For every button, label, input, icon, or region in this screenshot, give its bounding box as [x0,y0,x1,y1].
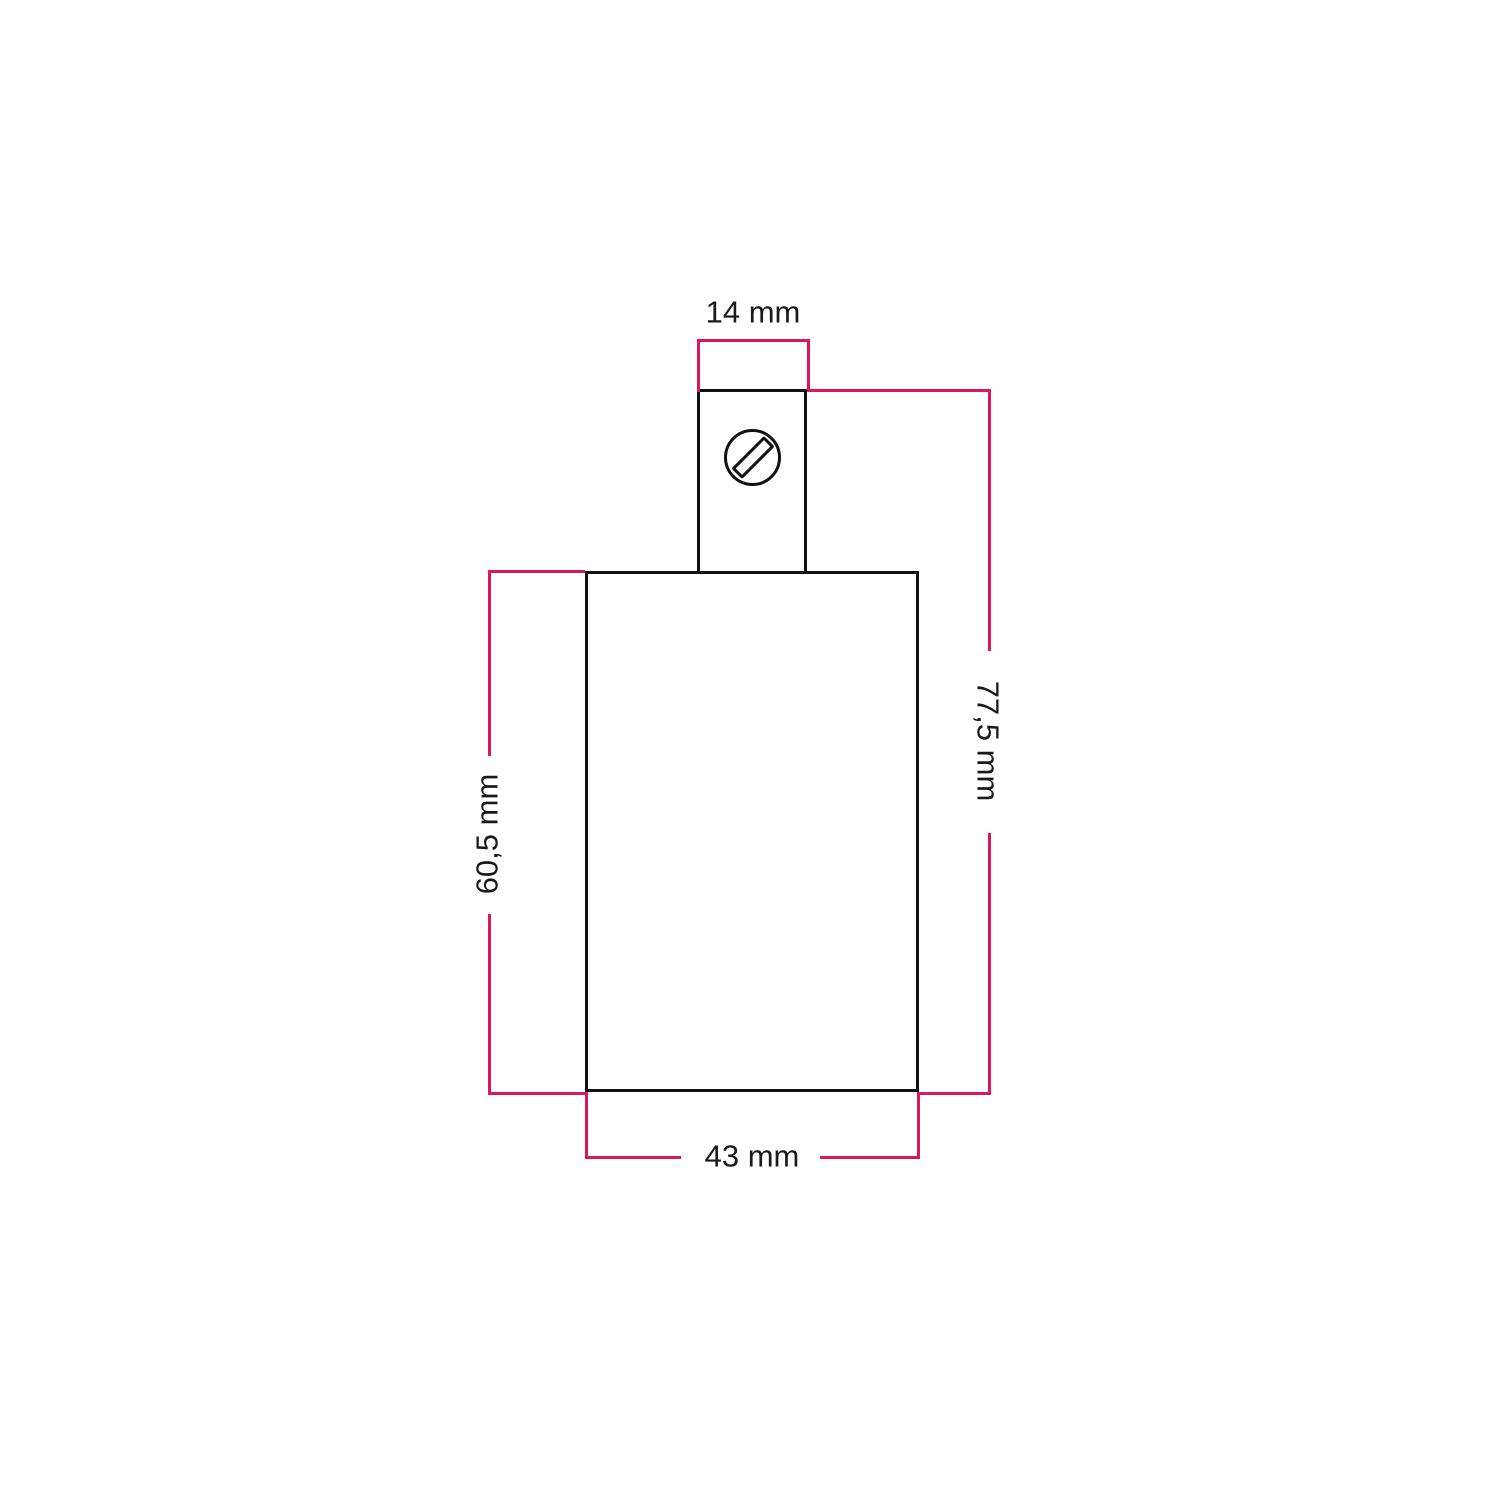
extension-line [919,1092,991,1095]
extension-line [585,1092,588,1159]
dimension-line [697,339,810,342]
dimension-label-body-height: 60,5 mm [472,774,503,895]
dimension-line [488,570,491,756]
dimension-label-body-width: 43 mm [705,1141,800,1172]
extension-line [807,339,810,392]
dimension-line [585,1156,681,1159]
extension-line [810,389,991,392]
extension-line [488,1092,585,1095]
dimension-line [988,833,991,1095]
dimension-line [488,914,491,1095]
extension-line [697,339,700,392]
dimension-line [820,1156,920,1159]
dimension-label-overall-height: 77,5 mm [973,681,1004,802]
dimension-label-neck-width: 14 mm [706,297,801,328]
extension-line [917,1092,920,1159]
extension-line [488,570,585,573]
lamp-holder-body-outline [585,571,919,1092]
dimension-diagram: 14 mm 77,5 mm 60,5 mm 43 mm [0,0,1500,1500]
dimension-line [988,389,991,651]
